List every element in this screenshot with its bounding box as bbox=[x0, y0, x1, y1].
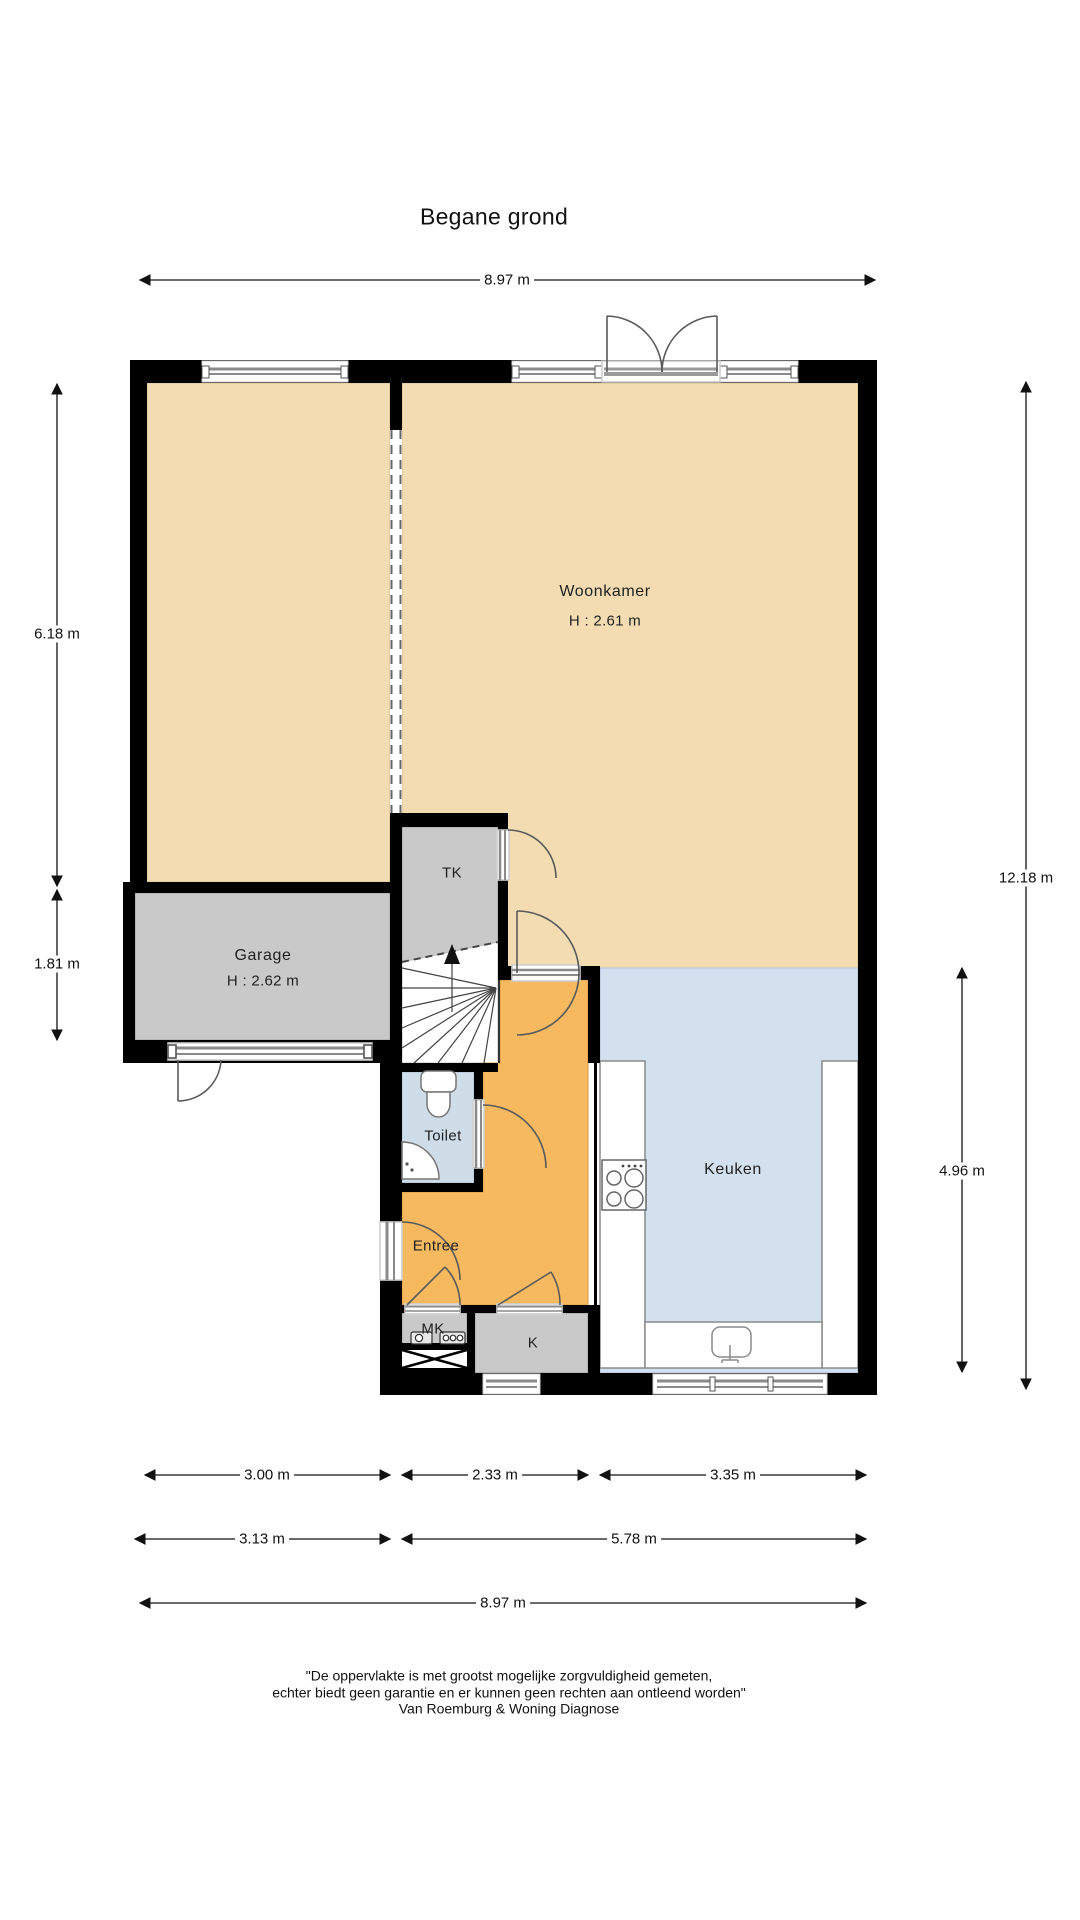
tk-floor bbox=[402, 827, 498, 962]
window-top-middle bbox=[512, 361, 602, 382]
wall-divider-stub bbox=[390, 383, 402, 430]
wall-keuken-west bbox=[588, 966, 600, 1063]
room-label-mk: MK bbox=[421, 1321, 444, 1338]
dim-bottom2-left: 3.13 m bbox=[235, 1531, 289, 1548]
dim-bottom1-keuken: 3.35 m bbox=[706, 1467, 760, 1484]
window-top-right bbox=[720, 361, 798, 382]
room-label-keuken: Keuken bbox=[704, 1161, 762, 1179]
wall-mk-k-pier bbox=[460, 1305, 497, 1313]
garage-door bbox=[168, 1043, 372, 1101]
window-top-left bbox=[202, 361, 348, 382]
room-label-garage: Garage bbox=[235, 947, 292, 965]
wall-k-right bbox=[588, 1305, 600, 1373]
french-doors bbox=[602, 316, 720, 382]
dim-bottom2-right: 5.78 m bbox=[607, 1531, 661, 1548]
stove bbox=[602, 1160, 646, 1210]
stairs-edge-line bbox=[498, 980, 500, 1063]
room-height-garage: H : 2.62 m bbox=[227, 973, 299, 990]
page-title: Begane grond bbox=[420, 204, 568, 231]
wall-garage-outer bbox=[123, 882, 135, 1063]
disclaimer-line1: "De oppervlakte is met grootst mogelijke… bbox=[272, 1667, 746, 1684]
disclaimer-line3: Van Roemburg & Woning Diagnose bbox=[272, 1700, 746, 1717]
room-height-woonkamer: H : 2.61 m bbox=[569, 613, 641, 630]
wall-tk-right-lower bbox=[498, 880, 508, 980]
dim-left-upper: 6.18 m bbox=[30, 626, 84, 643]
dim-bottom1-hall: 2.33 m bbox=[468, 1467, 522, 1484]
wall-tk-top bbox=[390, 813, 508, 827]
window-bottom-k bbox=[483, 1374, 540, 1394]
open-connection-dashed bbox=[390, 430, 402, 813]
wall-right bbox=[858, 360, 877, 1395]
counter-south bbox=[645, 1322, 822, 1368]
dim-left-lower: 1.81 m bbox=[30, 956, 84, 973]
room-label-k: K bbox=[528, 1335, 538, 1352]
counter-east bbox=[822, 1061, 858, 1368]
wall-crate-bottom-bar bbox=[402, 1368, 467, 1373]
garage-floor bbox=[135, 893, 390, 1040]
room-label-entree: Entree bbox=[413, 1238, 460, 1255]
dim-right-kitchen: 4.96 m bbox=[935, 1163, 989, 1180]
room-label-tk: TK bbox=[442, 865, 462, 882]
floorplan-drawing bbox=[0, 0, 1080, 1920]
disclaimer-text: "De oppervlakte is met grootst mogelijke… bbox=[272, 1667, 746, 1717]
wall-garage-top bbox=[123, 882, 402, 893]
room-label-toilet: Toilet bbox=[424, 1128, 461, 1145]
wall-mk-right bbox=[467, 1305, 475, 1373]
wall-toilet-bottom bbox=[402, 1183, 483, 1192]
wall-counter-edge bbox=[594, 1063, 597, 1305]
crate-box bbox=[402, 1350, 467, 1368]
window-bottom-keuken bbox=[653, 1374, 827, 1394]
dim-right-total: 12.18 m bbox=[995, 870, 1057, 887]
dim-top-width: 8.97 m bbox=[480, 272, 534, 289]
wall-toilet-right-upper bbox=[474, 1063, 483, 1100]
disclaimer-line2: echter biedt geen garantie en er kunnen … bbox=[272, 1684, 746, 1701]
dim-bottom1-garage: 3.00 m bbox=[240, 1467, 294, 1484]
wall-garage-right bbox=[390, 893, 402, 1040]
front-room-floor bbox=[147, 383, 390, 882]
dim-bottom3-total: 8.97 m bbox=[476, 1595, 530, 1612]
wall-left-upper bbox=[130, 360, 147, 893]
floorplan-page: Begane grond Woonkamer H : 2.61 m Garage… bbox=[0, 0, 1080, 1920]
wall-k-top bbox=[562, 1305, 588, 1313]
room-label-woonkamer: Woonkamer bbox=[559, 583, 650, 601]
wall-west-lower bbox=[380, 1040, 402, 1395]
wall-tk-right-upper bbox=[498, 813, 508, 830]
counter-west bbox=[600, 1061, 645, 1368]
